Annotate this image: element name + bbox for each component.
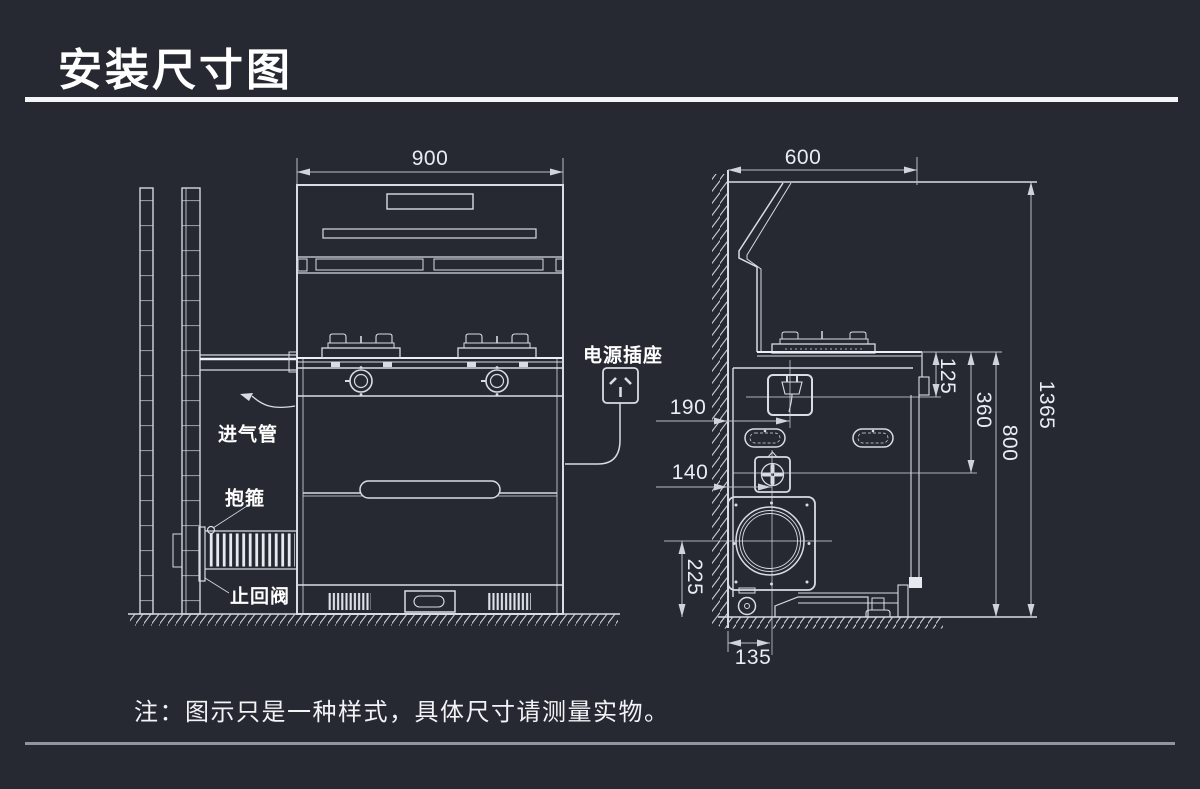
hood-front [297, 194, 563, 273]
vent-left [328, 593, 371, 610]
ground-side [718, 617, 1037, 629]
installation-diagram-page: 安装尺寸图 注：图示只是一种样式，具体尺寸请测量实物。 900 600 190 … [0, 0, 1200, 789]
control-knob-left [345, 366, 372, 396]
dim-front-width: 900 [412, 147, 449, 171]
cooktop-front [297, 334, 563, 396]
front-view-drawing [128, 185, 638, 626]
dim-outlet-from-wall: 135 [735, 646, 772, 670]
leveling-foot [866, 610, 890, 617]
dim-total-height: 1365 [1034, 381, 1058, 430]
hood-profile [739, 183, 791, 352]
wall-pipe-columns [140, 188, 200, 614]
power-socket-side [746, 360, 941, 428]
cabinet-side [733, 352, 929, 617]
dim-socket-below-top: 125 [935, 358, 959, 395]
ground-front [128, 614, 620, 626]
gas-pipe [200, 352, 297, 372]
appliance-outline [297, 185, 563, 614]
handle-recess-left [745, 429, 785, 447]
handle-recess-right [853, 429, 893, 447]
hood-display [387, 194, 473, 209]
label-gas-inlet-pipe: 进气管 [218, 420, 278, 447]
power-socket-front [565, 368, 638, 464]
dim-outlet-height: 225 [682, 559, 706, 596]
dim-countertop-height: 800 [997, 425, 1021, 462]
label-check-valve: 止回阀 [230, 582, 290, 609]
dim-valve-below-top: 360 [971, 392, 995, 429]
label-power-socket: 电源插座 [583, 341, 663, 368]
doors-front [297, 481, 563, 585]
caster-wheel [739, 588, 756, 615]
label-clamp: 抱箍 [225, 484, 265, 511]
power-cord [565, 403, 620, 464]
burner-side [772, 331, 875, 353]
gas-hose-arrow [240, 393, 253, 401]
hood-suction-slot [323, 229, 536, 238]
footnote: 注：图示只是一种样式，具体尺寸请测量实物。 [134, 692, 670, 727]
technical-drawing [0, 0, 1200, 789]
dim-valve-from-wall: 140 [672, 461, 709, 485]
bottom-divider [25, 742, 1175, 745]
wall [712, 170, 728, 628]
base-pan [775, 597, 868, 617]
vent-right [488, 593, 531, 610]
page-title: 安装尺寸图 [58, 34, 293, 98]
base-front [328, 591, 531, 612]
dim-depth: 600 [785, 146, 822, 170]
gas-hose [252, 396, 295, 407]
dim-socket-from-wall: 190 [670, 396, 707, 420]
door-handle [360, 481, 500, 498]
control-knob-right [481, 366, 508, 396]
